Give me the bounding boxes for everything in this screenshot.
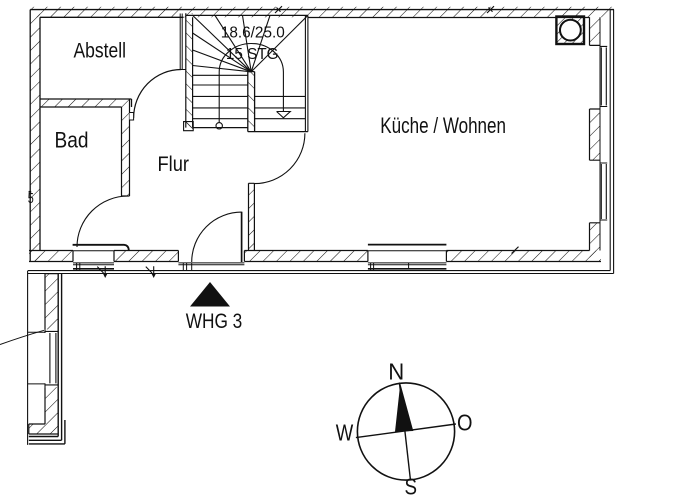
svg-text:15 STG: 15 STG (226, 46, 279, 63)
svg-text:Küche / Wohnen: Küche / Wohnen (380, 113, 506, 138)
svg-text:S: S (405, 473, 418, 499)
svg-text:18.6/25.0: 18.6/25.0 (221, 25, 285, 42)
svg-text:Bad: Bad (55, 128, 89, 153)
svg-text:WHG 3: WHG 3 (186, 309, 243, 333)
svg-text:Abstell: Abstell (74, 40, 127, 63)
svg-text:N: N (388, 359, 404, 385)
svg-text:Flur: Flur (158, 153, 190, 176)
svg-text:5: 5 (28, 191, 34, 207)
svg-text:O: O (457, 409, 473, 435)
svg-text:W: W (336, 420, 354, 446)
